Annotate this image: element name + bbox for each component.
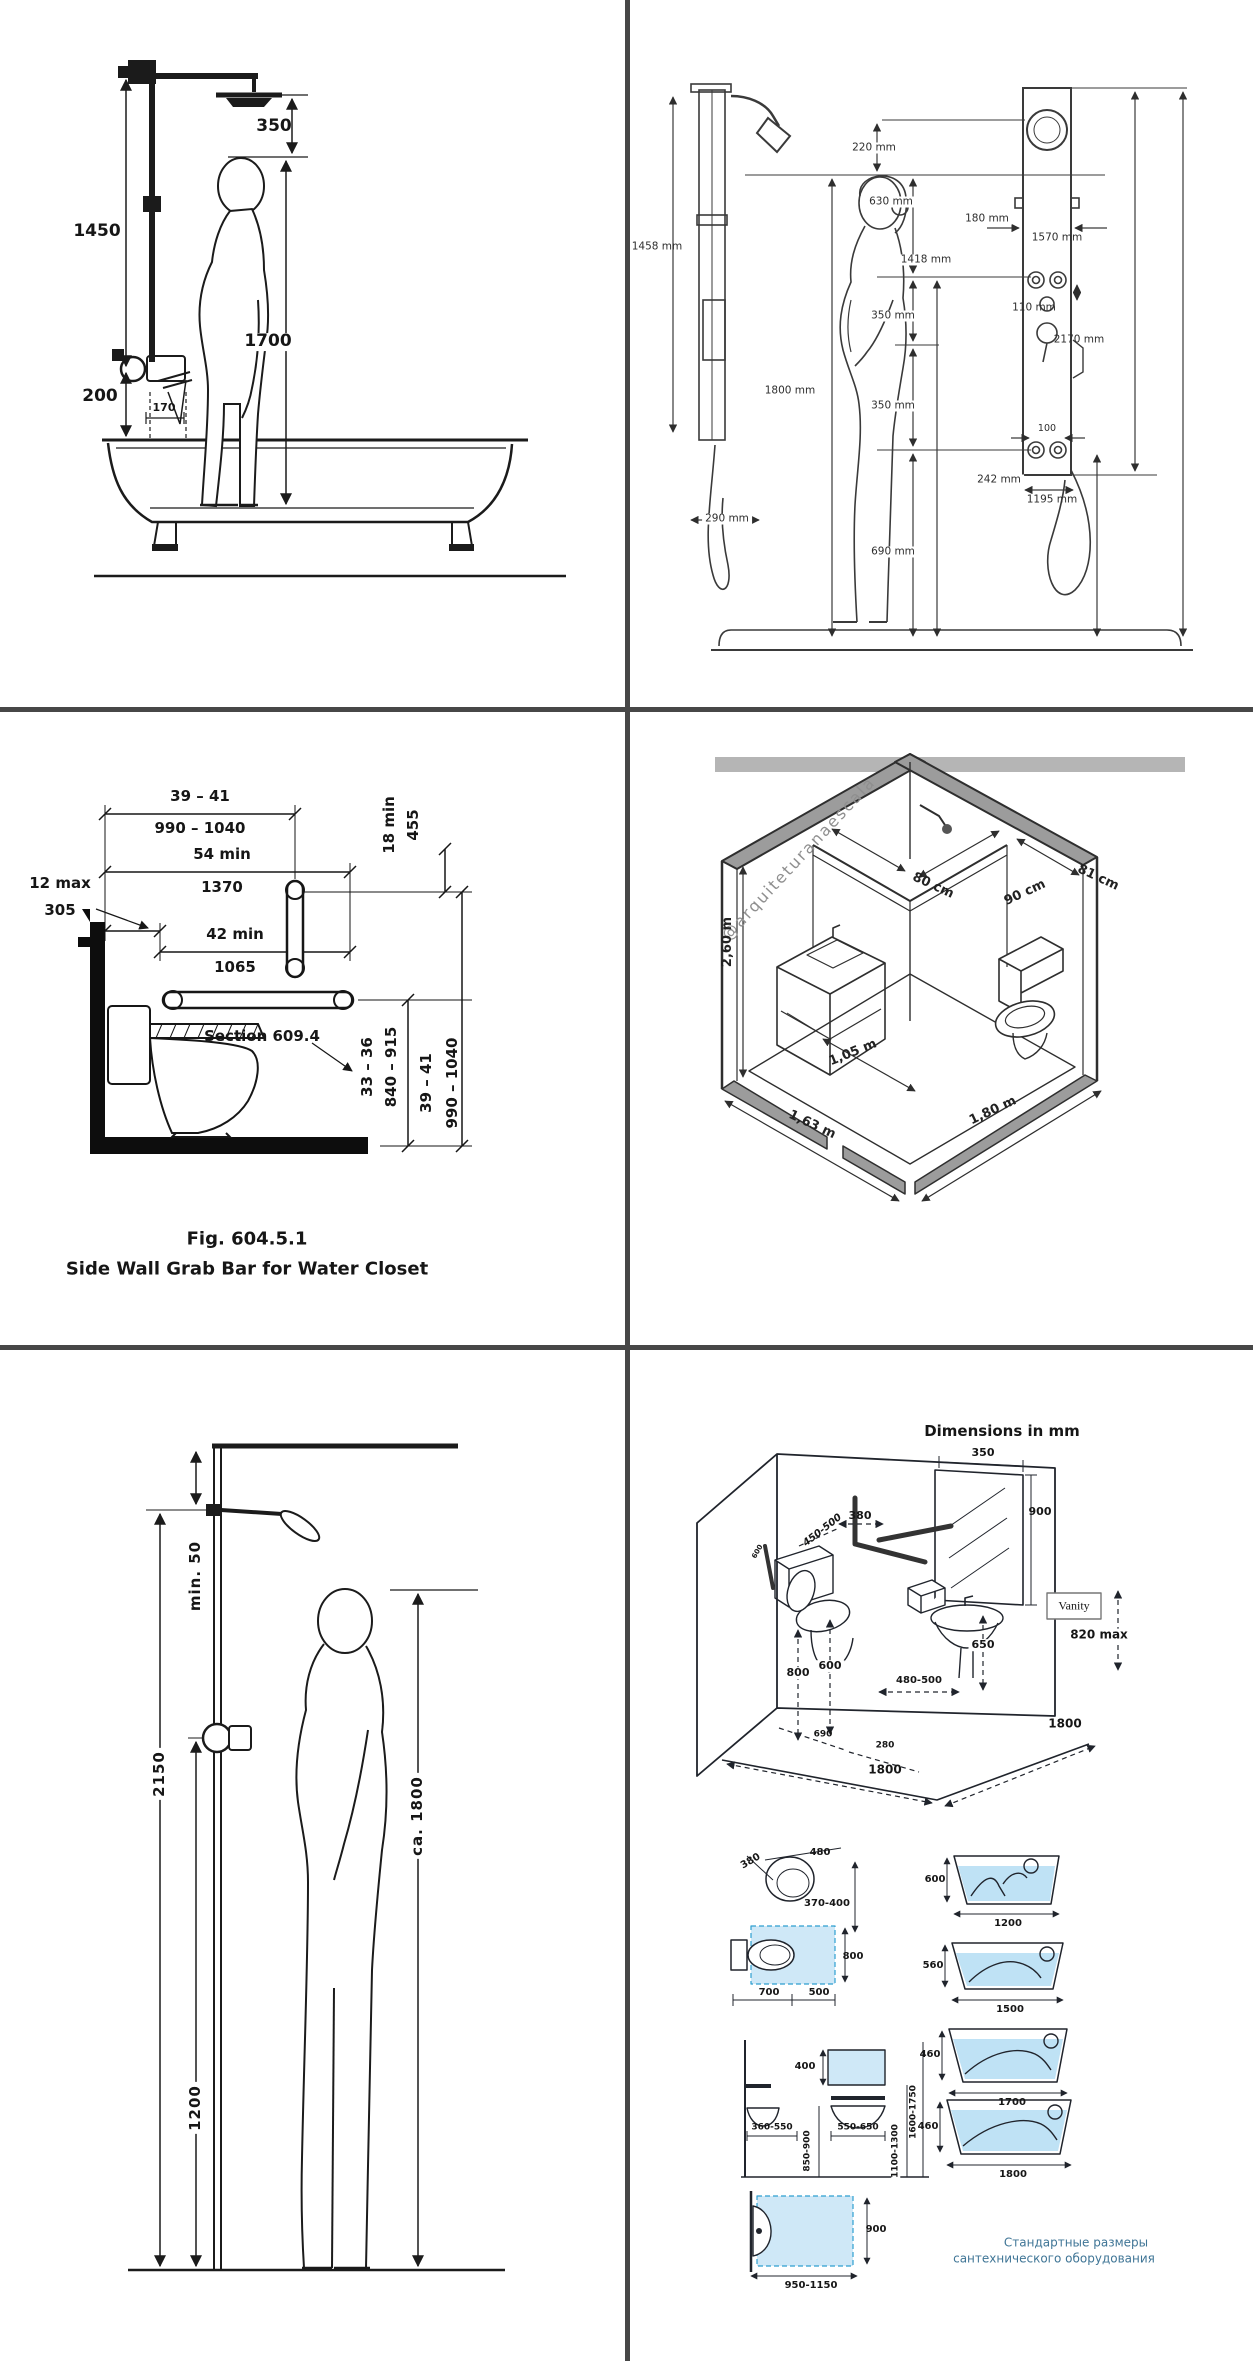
dim-side-depth: 290 mm bbox=[702, 513, 752, 524]
dim-toilet-front: 480-500 bbox=[893, 1676, 945, 1687]
panel-shower-column: 1458 mm 290 mm 1800 mm 220 mm 630 mm 141… bbox=[627, 0, 1253, 709]
tub3-height: 460 bbox=[920, 2050, 941, 2061]
dim-spout-height: 200 bbox=[82, 388, 118, 406]
dim-vanity-height: 820 max bbox=[1067, 1629, 1131, 1642]
toilet-plan-rear: 700 bbox=[759, 1988, 780, 1999]
basin-elev-h2: 1100-1300 bbox=[891, 2121, 900, 2181]
dim-mirror-height: 900 bbox=[1029, 1506, 1052, 1518]
tub2-length: 1500 bbox=[996, 2005, 1024, 2016]
dim-panel-width: 180 mm bbox=[962, 213, 1012, 224]
dim-vert-bar-in: 18 min bbox=[382, 796, 398, 854]
panel-shower-over-bathtub: 350 1450 1700 200 170 bbox=[0, 0, 627, 709]
basin-elev-small: 360-550 bbox=[751, 2123, 792, 2132]
tub1-length: 1200 bbox=[994, 1919, 1022, 1930]
dim-room-depth: 1800 bbox=[1048, 1718, 1081, 1731]
dim-hose-height: 1195 mm bbox=[1027, 494, 1078, 505]
dim-cistern-gap: 380 bbox=[849, 1510, 872, 1522]
dim-room-width: 1800 bbox=[868, 1764, 901, 1777]
dim-bar-height-mm: 990 – 1040 bbox=[445, 1037, 461, 1128]
figure-number: Fig. 604.5.1 bbox=[187, 1231, 308, 1250]
dim-standing-height: 1700 bbox=[241, 333, 294, 351]
dim-wall-run-in: 54 min bbox=[193, 847, 251, 863]
basin-elev-large: 550-650 bbox=[837, 2123, 878, 2132]
dim-toilet-seat-height: 600 bbox=[816, 1660, 845, 1672]
dim-front-ext-mm: 1065 bbox=[214, 960, 256, 976]
dim-jets-height: 1418 mm bbox=[898, 254, 955, 265]
dim-riser-height: 1450 bbox=[73, 223, 120, 241]
tub3-length: 1700 bbox=[998, 2098, 1026, 2109]
dim-jet-gap-lower: 350 mm bbox=[868, 400, 918, 411]
dim-jet-gap-upper: 350 mm bbox=[868, 310, 918, 321]
basin-plan-width: 950-1150 bbox=[785, 2281, 838, 2292]
dim-rear-offset-in: 12 max bbox=[29, 876, 91, 892]
dim-mirror-width: 350 bbox=[972, 1447, 995, 1459]
dim-vert-bar-mm: 455 bbox=[406, 809, 422, 840]
toilet-plan-front: 500 bbox=[809, 1988, 830, 1999]
bathroom-dimension-collage: 350 1450 1700 200 170 bbox=[0, 0, 1253, 2361]
caption-ru-line2: сантехнического оборудования bbox=[953, 2253, 1155, 2266]
dim-bar-length-in: 39 – 41 bbox=[170, 789, 230, 805]
dim-base-width: 242 mm bbox=[974, 474, 1024, 485]
dim-front-ext-in: 42 min bbox=[206, 927, 264, 943]
dim-side-height: 1458 mm bbox=[632, 241, 683, 252]
dim-seat-height-mm: 840 – 915 bbox=[384, 1027, 400, 1108]
dim-floor-clearance: 690 mm bbox=[868, 546, 918, 557]
dim-seat-height-in: 33 – 36 bbox=[360, 1037, 376, 1097]
vertical-divider bbox=[625, 0, 630, 2361]
section-reference: Section 609.4 bbox=[204, 1029, 320, 1045]
shower-heights-drawing bbox=[0, 1348, 627, 2361]
dim-toilet-center: 280 bbox=[876, 1741, 895, 1750]
caption-ru-line1: Стандартные размеры bbox=[1004, 2237, 1148, 2250]
dim-toilet-side: 690 bbox=[814, 1730, 833, 1739]
dim-bar-height-in: 39 – 41 bbox=[419, 1053, 435, 1113]
dim-valve-height: 1200 bbox=[188, 2082, 204, 2134]
dim-total-height: 2170 mm bbox=[1054, 334, 1105, 345]
basin-elev-h1: 850-900 bbox=[803, 2127, 812, 2174]
dim-bar-length-mm: 990 – 1040 bbox=[154, 821, 245, 837]
basin-elev-h3: 1600-1750 bbox=[909, 2082, 918, 2142]
tub4-height: 460 bbox=[918, 2122, 939, 2133]
accessible-bathroom-drawing bbox=[627, 1348, 1253, 2361]
vanity-label: Vanity bbox=[1058, 1600, 1089, 1613]
basin-elev-mirror: 400 bbox=[795, 2062, 816, 2073]
shower-bathtub-drawing bbox=[0, 0, 627, 709]
dim-knob-spacing: 110 mm bbox=[1012, 302, 1056, 313]
tub4-length: 1800 bbox=[999, 2170, 1027, 2181]
dim-head-clearance: 220 mm bbox=[849, 142, 899, 153]
isometric-bathroom-drawing bbox=[627, 709, 1253, 1348]
panel-accessible-bathroom: Dimensions in mm 350 900 380 450-500 600… bbox=[627, 1348, 1253, 2361]
dim-arm-clearance: min. 50 bbox=[188, 1538, 204, 1614]
dim-basin-clearance: 650 bbox=[969, 1639, 998, 1651]
toilet-top-height: 370-400 bbox=[804, 1899, 850, 1910]
dim-person-height: ca. 1800 bbox=[410, 1773, 426, 1859]
dim-head-clearance: 350 bbox=[256, 118, 292, 136]
dim-wall-run-mm: 1370 bbox=[201, 880, 243, 896]
basin-plan-depth: 900 bbox=[866, 2225, 887, 2236]
toilet-top-width: 480 bbox=[810, 1848, 831, 1859]
panel-isometric-bathroom: @arquiteturanaescala 80 cm 90 cm 81 cm 2… bbox=[627, 709, 1253, 1348]
dim-pipe-height: 2150 bbox=[152, 1748, 168, 1800]
dim-head-drop: 630 mm bbox=[866, 196, 916, 207]
dim-panel-height: 1570 mm bbox=[1032, 232, 1083, 243]
shower-column-drawing bbox=[627, 0, 1253, 709]
dim-person-height: 1800 mm bbox=[762, 385, 819, 396]
horizontal-divider-1 bbox=[0, 707, 1253, 712]
horizontal-divider-2 bbox=[0, 1345, 1253, 1350]
dim-toilet-rear-height: 800 bbox=[784, 1667, 813, 1679]
figure-title: Side Wall Grab Bar for Water Closet bbox=[66, 1261, 428, 1280]
dim-jet-spacing: 100 bbox=[1038, 424, 1056, 434]
tub1-height: 600 bbox=[925, 1875, 946, 1886]
panel-shower-heights: min. 50 2150 1200 ca. 1800 bbox=[0, 1348, 627, 2361]
tub2-height: 560 bbox=[923, 1961, 944, 1972]
toilet-plan-depth: 800 bbox=[843, 1952, 864, 1963]
panel-title: Dimensions in mm bbox=[924, 1424, 1080, 1440]
panel-grab-bar-figure: 39 – 41 990 – 1040 54 min 1370 12 max 30… bbox=[0, 709, 627, 1348]
dim-rear-offset-mm: 305 bbox=[44, 903, 75, 919]
dim-ceiling-height: 2,60 m bbox=[721, 917, 735, 967]
dim-spout-depth: 170 bbox=[153, 402, 176, 414]
